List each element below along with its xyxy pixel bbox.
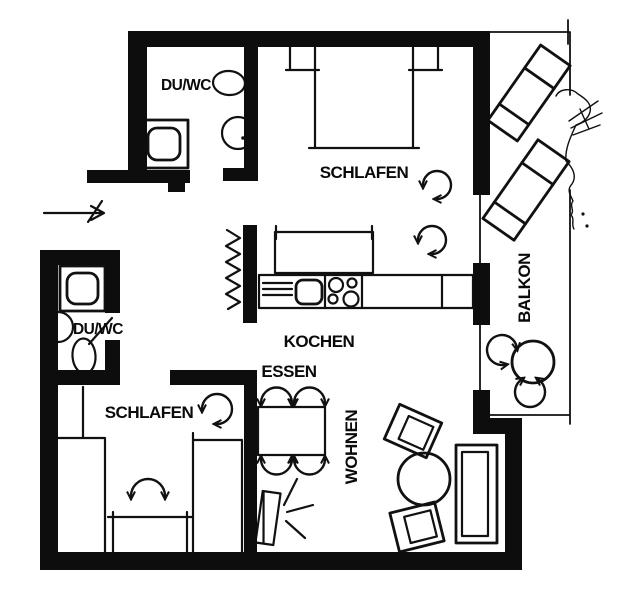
- wall-living-right: [505, 418, 522, 570]
- door-swing-arc: [423, 171, 451, 199]
- plant-sketch: [556, 90, 602, 229]
- entry-arrow: [44, 201, 104, 222]
- kitchen-upper-cabinet: [275, 226, 373, 273]
- wall-bath-top-right: [244, 43, 258, 168]
- wall-bedroom2-top: [170, 370, 257, 385]
- wall-balcony-pillar-lower: [473, 390, 490, 420]
- wall-bath2-bottom: [58, 370, 120, 385]
- wardrobe-right: [193, 433, 242, 552]
- coat-rack: [226, 230, 240, 309]
- kitchen-hob: [329, 278, 359, 307]
- label-dining: ESSEN: [261, 362, 316, 381]
- label-bedroom-top: SCHLAFEN: [320, 163, 409, 182]
- label-balcony: BALKON: [515, 253, 534, 323]
- door-swing-arc: [418, 226, 446, 254]
- door-swing-arc: [202, 394, 232, 424]
- walls: [40, 31, 522, 570]
- bed-top: [309, 47, 419, 148]
- coffee-table: [398, 453, 450, 505]
- wall-balcony-pillar-mid: [473, 263, 490, 325]
- wall-bath-top-left: [128, 31, 147, 183]
- washbasin-left: [58, 312, 73, 342]
- kitchen-counter: [259, 275, 473, 308]
- balcony-table: [512, 341, 554, 383]
- tv-with-rays: [255, 479, 313, 545]
- floor-plan-page: DU/WC SCHLAFEN KOCHEN BALKON DU/WC SCHLA…: [0, 0, 632, 600]
- kitchen-sink: [263, 280, 322, 304]
- dining-chair: [261, 388, 292, 404]
- label-bath-left: DU/WC: [73, 321, 123, 338]
- wall-left-outer: [40, 250, 58, 570]
- wall-top: [128, 31, 490, 47]
- wall-right-upper: [473, 31, 490, 195]
- shower-top: [140, 120, 188, 168]
- sofa: [456, 445, 497, 543]
- wall-step: [473, 418, 522, 434]
- label-bath-top: DU/WC: [161, 77, 211, 94]
- dining-table: [258, 407, 325, 455]
- wall-entry-stub: [87, 170, 190, 183]
- toilet-top: [212, 70, 246, 96]
- wall-kitchen: [243, 225, 257, 323]
- wall-bottom: [40, 552, 522, 570]
- wall-bedroom2-right: [244, 370, 257, 552]
- bed-bottom: [108, 512, 192, 552]
- shower-left: [60, 266, 105, 311]
- label-bedroom-bottom: SCHLAFEN: [105, 403, 194, 422]
- dining-chair: [294, 388, 325, 404]
- dining-chair: [294, 459, 325, 474]
- sun-lounger: [483, 140, 569, 240]
- armchair: [390, 502, 444, 552]
- wall-bath-top-bottom: [223, 168, 258, 181]
- wall-entry-notch: [168, 183, 185, 192]
- door-swing-arc: [131, 479, 165, 496]
- floor-plan: DU/WC SCHLAFEN KOCHEN BALKON DU/WC SCHLA…: [0, 0, 632, 600]
- armchair: [384, 404, 441, 457]
- label-kitchen: KOCHEN: [284, 332, 355, 351]
- wall-bath2-right-upper: [105, 250, 120, 313]
- closet-left: [58, 387, 105, 552]
- dining-chair: [261, 459, 292, 474]
- label-living: WOHNEN: [342, 410, 361, 485]
- toilet-left: [71, 338, 96, 375]
